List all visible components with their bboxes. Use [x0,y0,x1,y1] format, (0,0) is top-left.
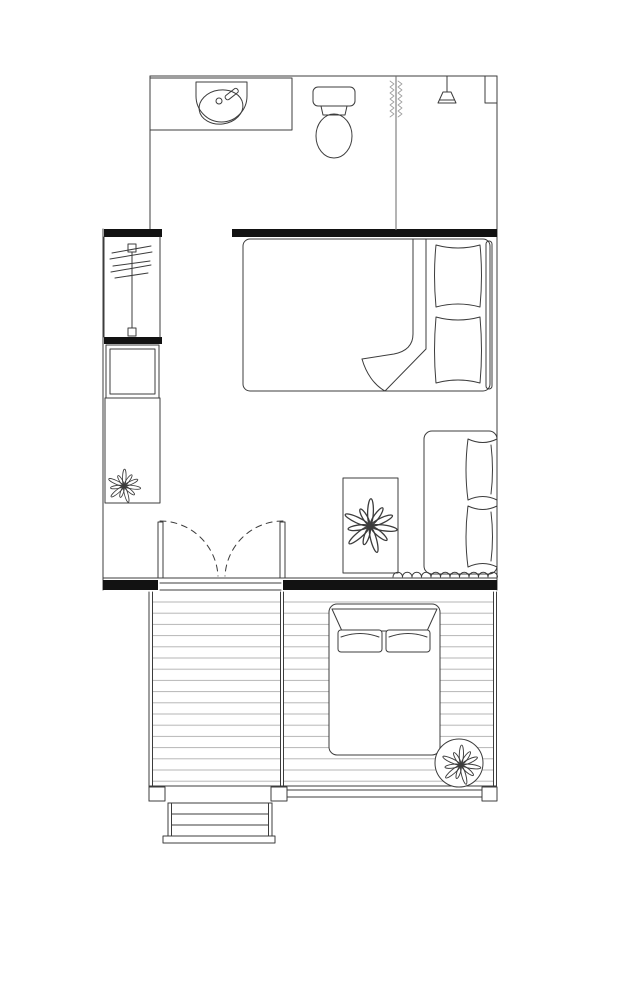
double-french-door [158,521,285,578]
toilet-bowl [316,114,352,158]
bathroom [150,76,497,229]
blanket-edge-outer [385,239,426,391]
rail-end-top [128,244,136,252]
double-bed [243,239,490,391]
appliance-box-outer [106,345,159,398]
bed-pillow-bottom [435,317,482,383]
deck [149,592,497,843]
rail-end-bottom [128,328,136,336]
closet-cabinet [105,398,160,503]
deck-boards-left [153,592,281,786]
sink-basin [197,87,245,127]
door-post-left [158,522,163,578]
deck-railing [149,787,497,801]
door-swing-right [225,521,283,576]
toilet [313,87,355,158]
appliance-box-inner [110,349,155,394]
plan-linework [103,76,498,843]
bedroom [243,239,492,391]
closet-plant [108,469,141,503]
bed-pillow-top [435,245,482,307]
shower-head [438,76,456,103]
wall-bottom-right [283,580,497,590]
closet [104,237,160,503]
door-swing-left [160,521,218,576]
sofa-cushion-bottom-crease [491,512,493,561]
sofa-cushion-top-crease [491,445,493,494]
sink-drain [216,98,222,104]
deck-post-left [149,787,165,801]
deck-post-middle [271,787,287,801]
corner-niche [485,76,497,103]
daybed [329,604,440,755]
wall-bathroom-bedroom [232,229,497,237]
floor-plan [0,0,644,1000]
wall-closet-divider [104,337,162,344]
blanket-edge-inner [362,239,413,359]
round-planter [435,739,483,787]
shower-head-cone [438,92,456,103]
living-area [158,431,498,578]
sofa [424,431,497,574]
bed-headboard [486,241,492,389]
rug-plant [344,499,397,553]
daybed-frame [329,604,440,755]
door-post-right [280,522,285,578]
wall-closet-top [104,229,162,237]
blanket-fold [362,359,385,391]
toilet-tank [313,87,355,106]
deck-post-right [482,787,497,801]
floor-plan-page [0,0,644,1000]
wall-bottom-left [103,580,158,590]
scalloped-curtain [393,572,498,577]
stairs [163,803,275,843]
stair-bottom-step [163,836,275,843]
shower-enclosure [390,77,402,229]
clothes-hangers [110,246,152,278]
